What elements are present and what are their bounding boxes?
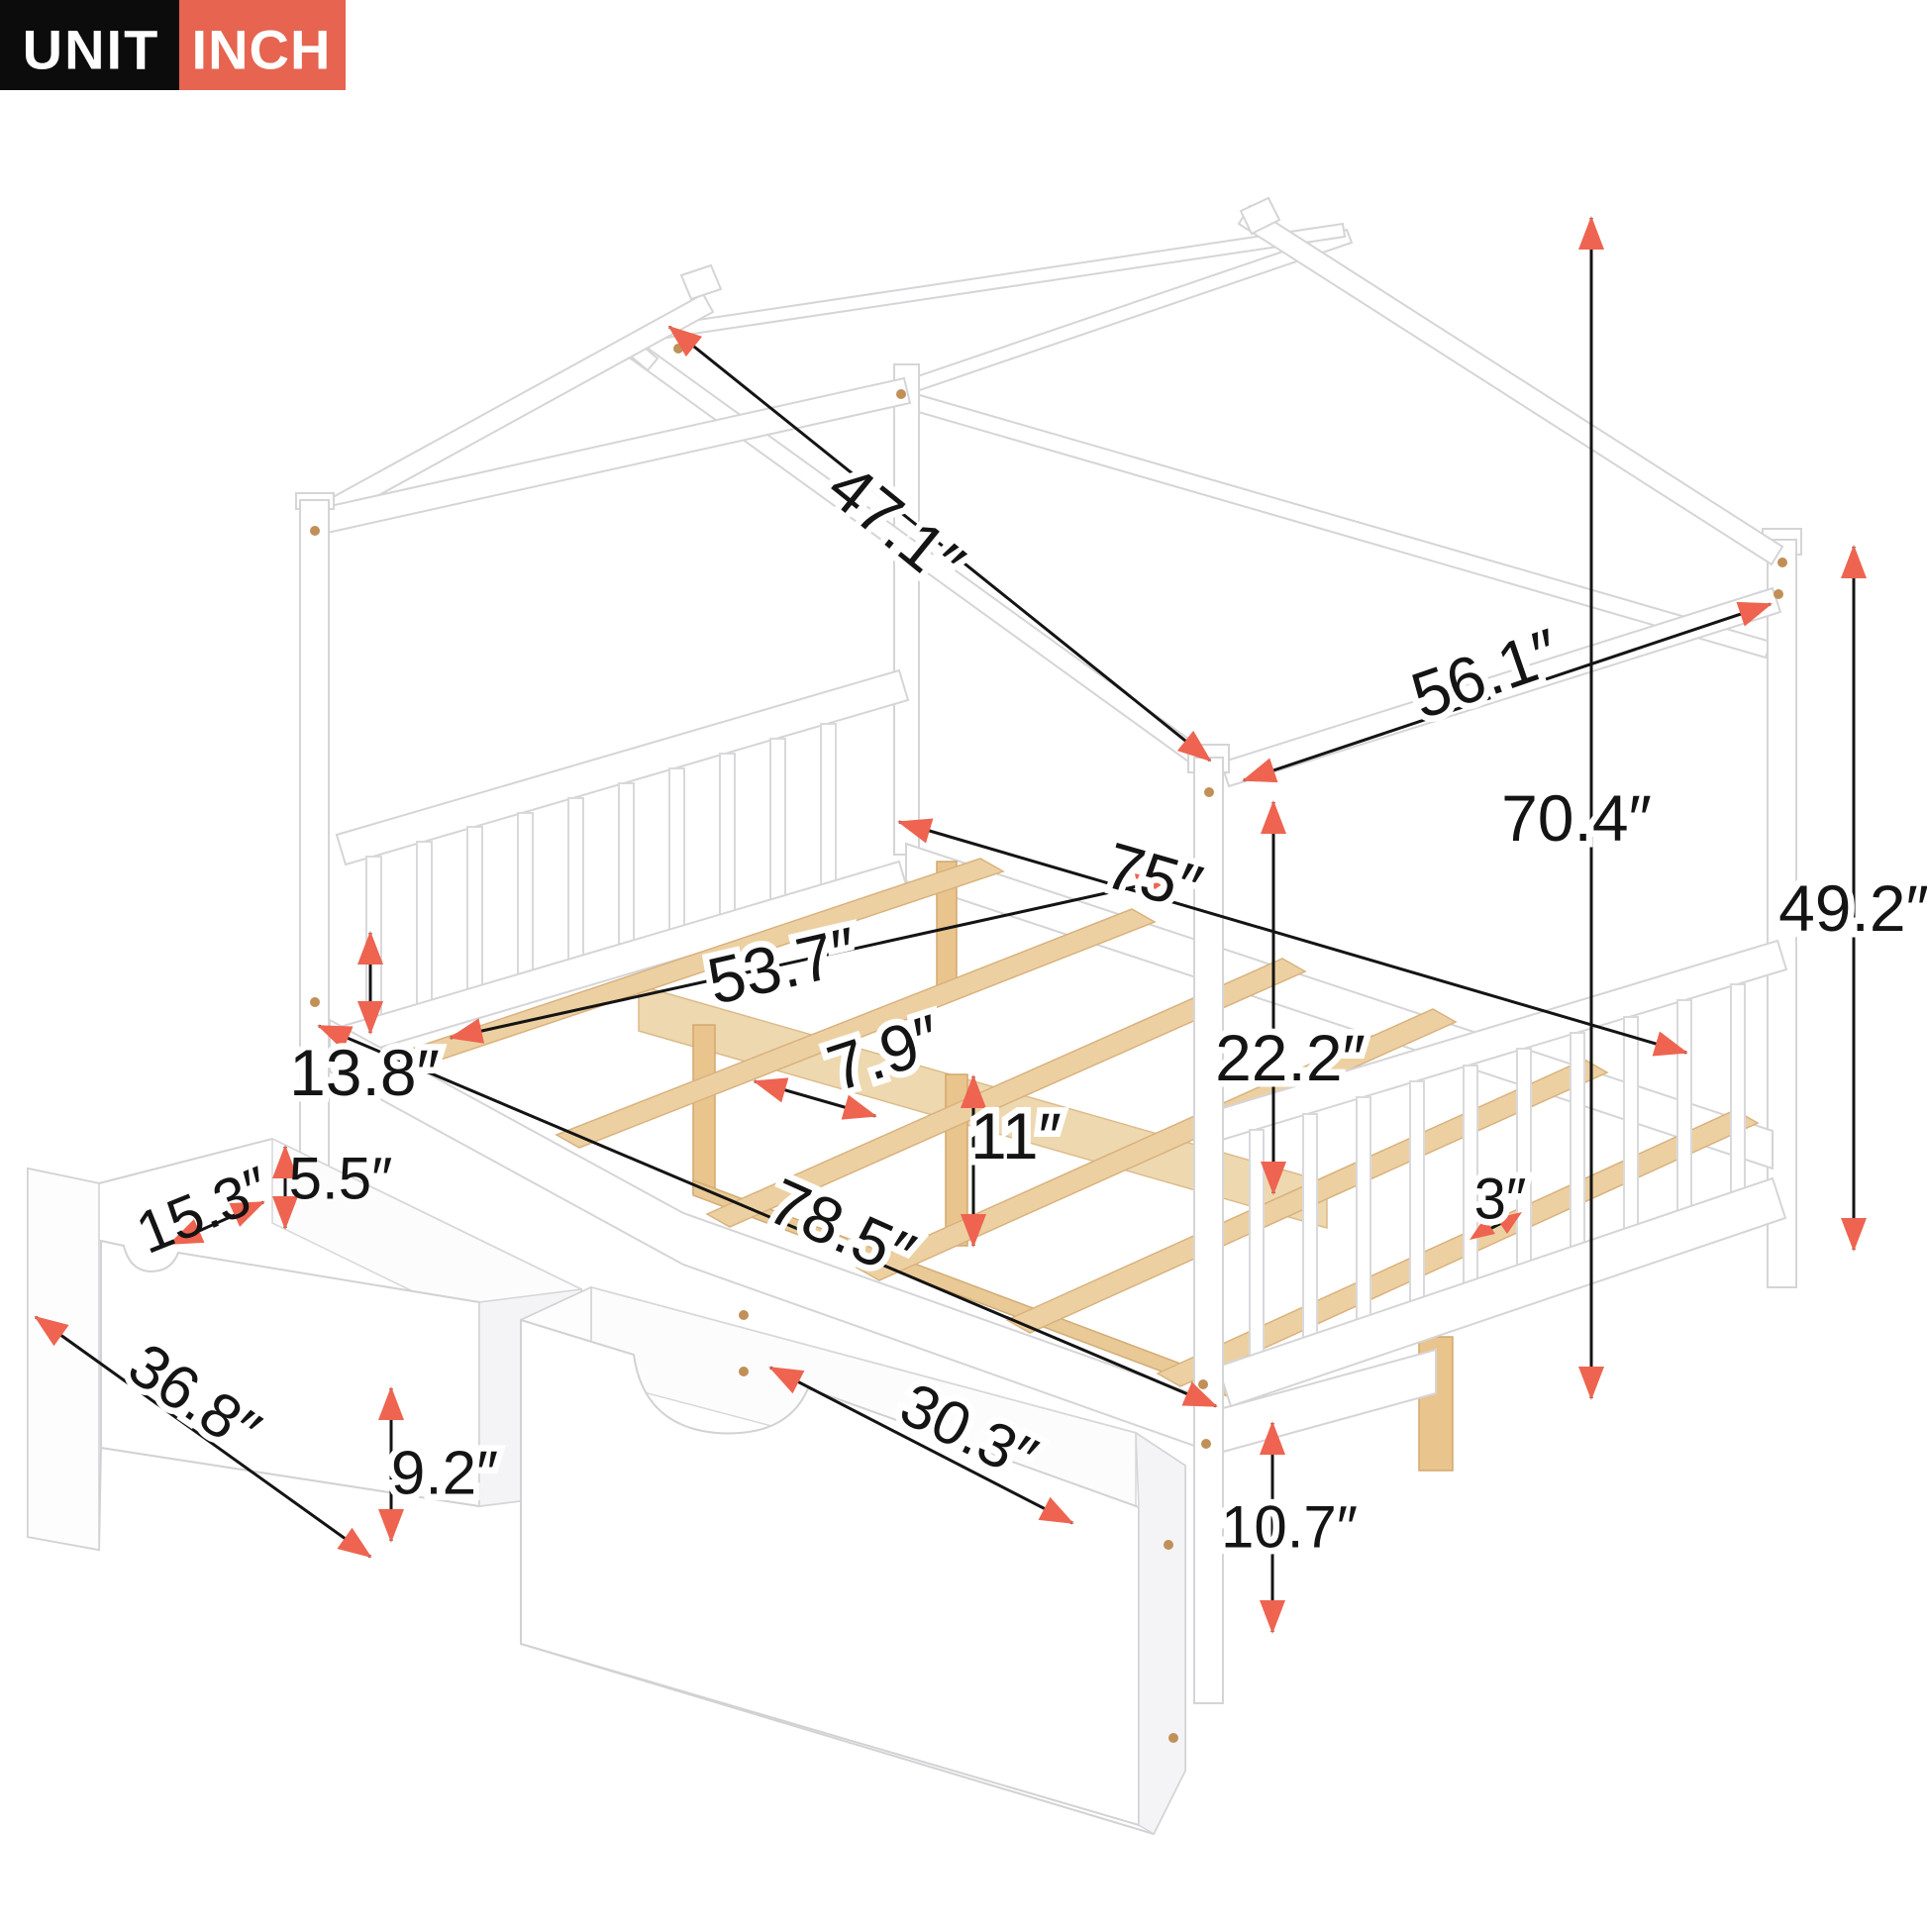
svg-text:3″: 3″ [1474, 1168, 1527, 1232]
svg-text:49.2″: 49.2″ [1778, 871, 1927, 945]
svg-text:22.2″: 22.2″ [1215, 1021, 1366, 1094]
svg-text:5.5″: 5.5″ [289, 1146, 393, 1212]
svg-text:10.7″: 10.7″ [1221, 1494, 1358, 1561]
svg-text:13.8″: 13.8″ [289, 1036, 440, 1109]
svg-text:70.4″: 70.4″ [1501, 781, 1652, 855]
svg-text:INCH: INCH [192, 19, 332, 81]
svg-text:11″: 11″ [970, 1099, 1062, 1172]
svg-text:UNIT: UNIT [23, 19, 160, 81]
svg-text:9.2″: 9.2″ [391, 1440, 498, 1508]
